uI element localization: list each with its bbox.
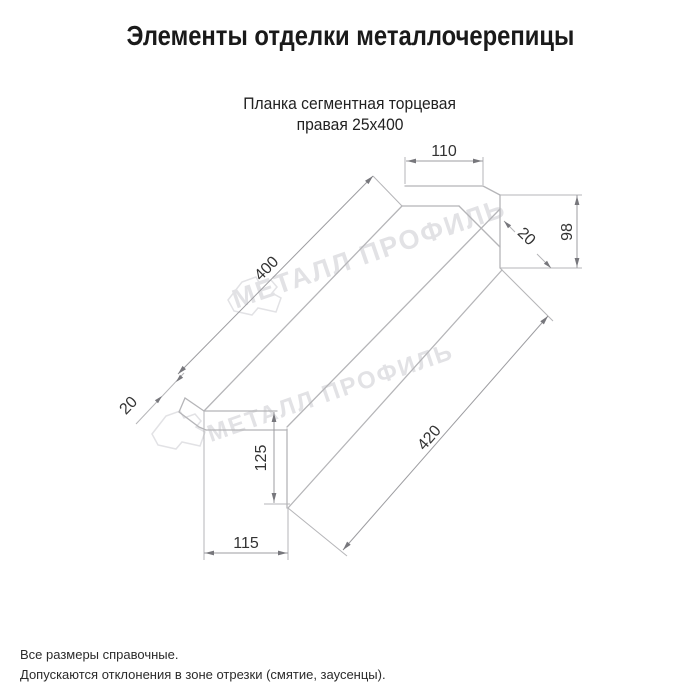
dim-label-110: 110 xyxy=(431,143,457,160)
brand-logo-watermark-lower xyxy=(152,411,205,449)
dim-arrow xyxy=(278,551,287,556)
extension-lines xyxy=(136,157,582,560)
technical-drawing: МЕТАЛЛ ПРОФИЛЬ МЕТАЛЛ ПРОФИЛЬ xyxy=(0,0,700,700)
dimension-lines xyxy=(178,161,577,553)
dim-label-98: 98 xyxy=(559,223,576,241)
dim-arrow xyxy=(205,551,214,556)
ext-top-cut xyxy=(373,176,402,206)
dim-label-20-right: 20 xyxy=(514,224,539,249)
dim-arrow xyxy=(575,196,580,205)
dimension-labels: 400 420 110 98 125 115 20 20 xyxy=(116,143,576,552)
top-end-kink-line xyxy=(483,186,500,195)
footnotes: Все размеры справочные. Допускаются откл… xyxy=(20,645,386,685)
dim-arrow xyxy=(272,493,277,502)
ext-420-top xyxy=(500,268,553,321)
dim-arrow xyxy=(575,258,580,267)
brand-watermark-upper: МЕТАЛЛ ПРОФИЛЬ xyxy=(228,193,509,315)
dim-label-125: 125 xyxy=(253,445,270,472)
dim-arrow xyxy=(473,159,482,164)
brand-watermark-lower: МЕТАЛЛ ПРОФИЛЬ xyxy=(204,338,457,448)
dim-arrow xyxy=(407,159,416,164)
dim-label-20-left: 20 xyxy=(116,393,141,418)
left-end-fold-notch xyxy=(179,398,206,430)
ext-420-bottom xyxy=(288,508,347,556)
dim-label-115: 115 xyxy=(233,535,259,552)
footnote-line2: Допускаются отклонения в зоне отрезки (с… xyxy=(20,665,386,685)
dimension-arrows xyxy=(155,159,580,556)
dim-label-420: 420 xyxy=(414,422,444,453)
footnote-line1: Все размеры справочные. xyxy=(20,645,386,665)
